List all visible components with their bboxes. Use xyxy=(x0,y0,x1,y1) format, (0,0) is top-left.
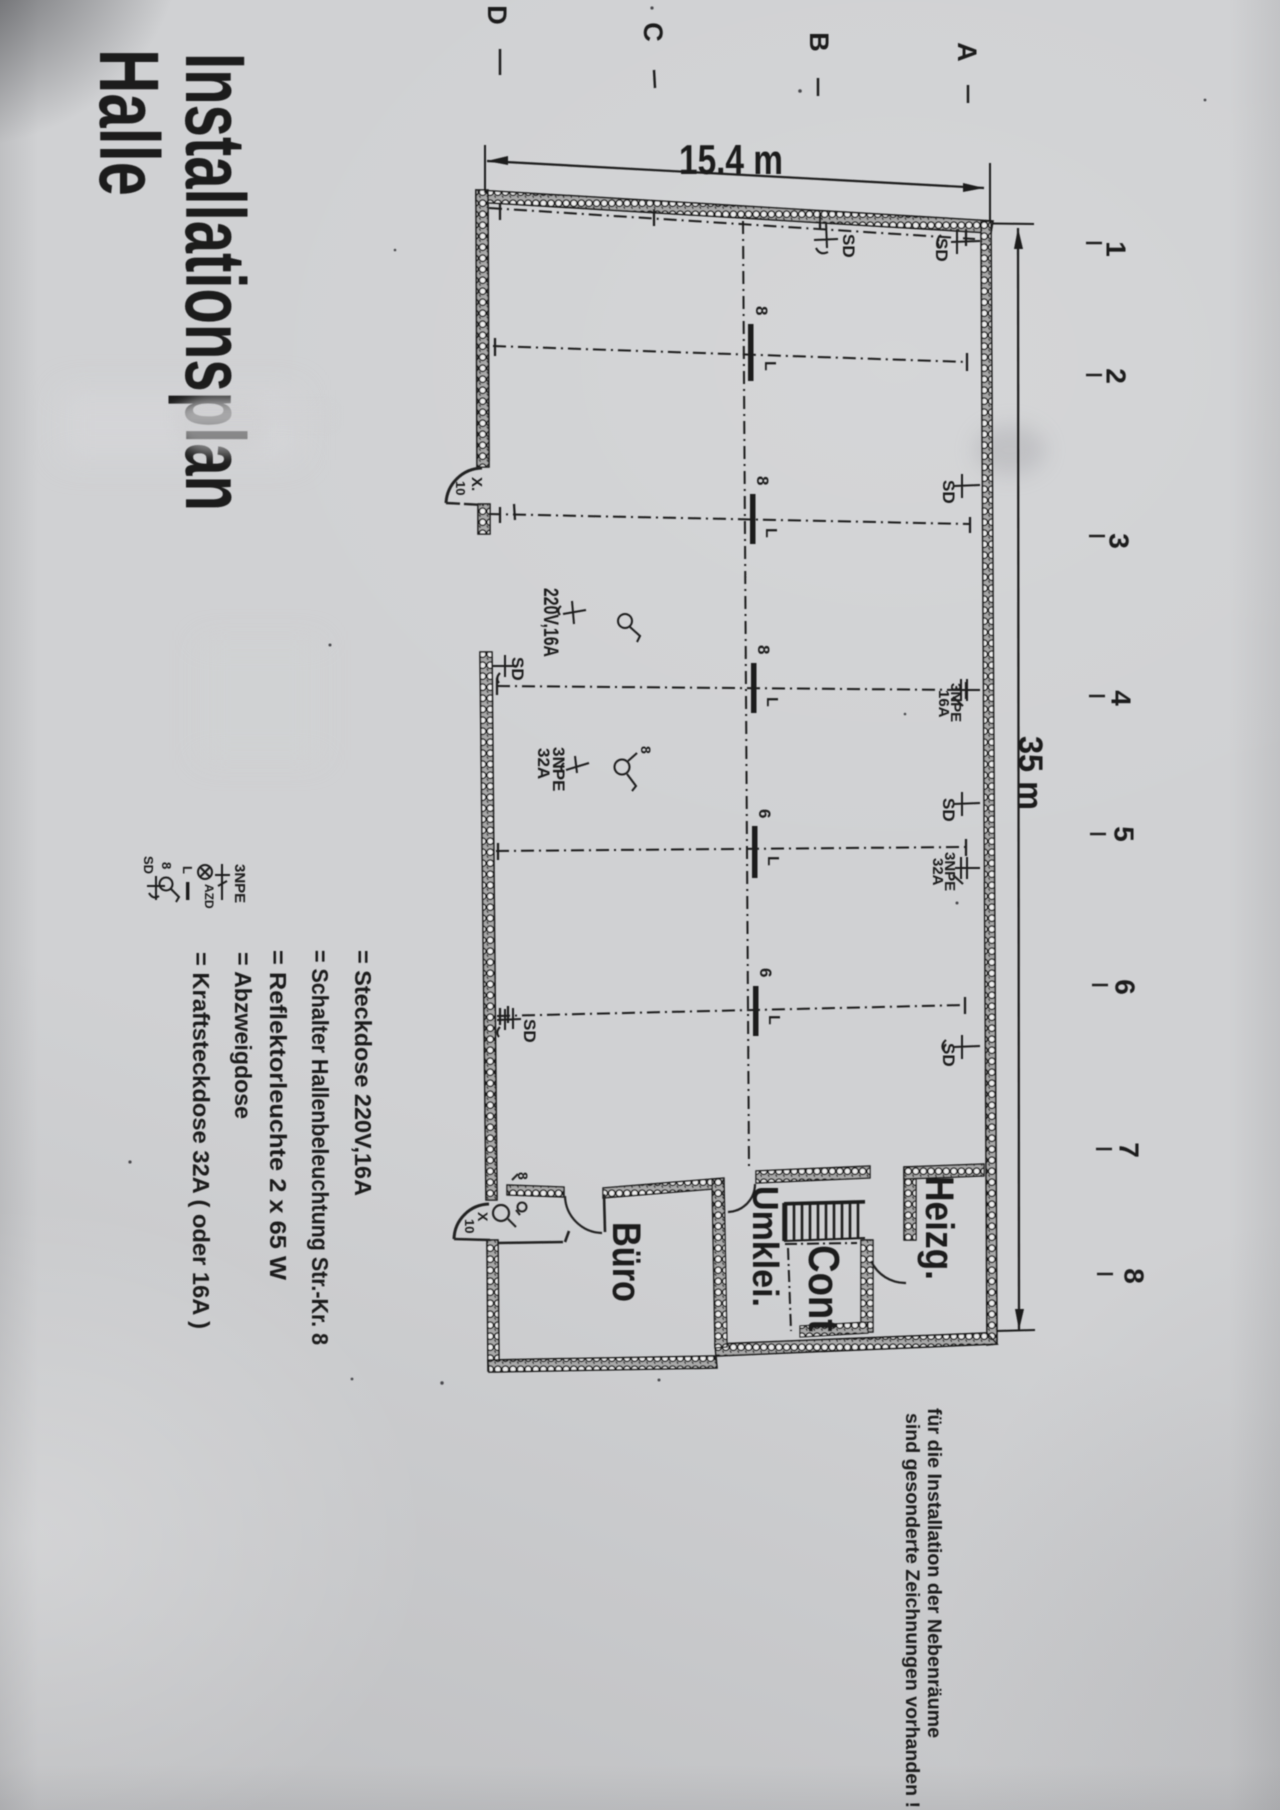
svg-text:8: 8 xyxy=(1119,1268,1150,1284)
svg-text:6: 6 xyxy=(756,968,775,977)
svg-text:L: L xyxy=(761,361,778,371)
svg-text:5: 5 xyxy=(1109,826,1140,842)
svg-text:für die Installation der Neben: für die Installation der Nebenräume xyxy=(923,1408,944,1738)
svg-text:= Kraftsteckdose 32A ( oder 16: = Kraftsteckdose 32A ( oder 16A ) xyxy=(188,952,214,1329)
svg-text:Büro: Büro xyxy=(604,1222,648,1302)
svg-text:10: 10 xyxy=(453,481,468,495)
svg-text:AZD: AZD xyxy=(202,884,216,909)
svg-text:16A: 16A xyxy=(935,690,952,718)
svg-text:3: 3 xyxy=(1104,533,1135,549)
svg-text:1: 1 xyxy=(1101,241,1132,257)
svg-text:Halle: Halle xyxy=(82,49,176,196)
svg-text:A: A xyxy=(952,42,982,62)
svg-text:= Abzweigdose: = Abzweigdose xyxy=(230,952,256,1119)
svg-text:8: 8 xyxy=(638,746,654,754)
svg-text:X.: X. xyxy=(468,477,485,491)
svg-text:SD: SD xyxy=(932,238,951,262)
svg-text:= Schalter Hallenbeleuchtung S: = Schalter Hallenbeleuchtung Str.-Kr. 8 xyxy=(307,950,333,1345)
svg-text:8: 8 xyxy=(159,862,174,869)
svg-text:SD: SD xyxy=(520,1019,539,1043)
svg-text:32A: 32A xyxy=(929,858,946,886)
svg-text:= Steckdose 220V,16A: = Steckdose 220V,16A xyxy=(350,950,376,1196)
svg-text:6: 6 xyxy=(755,809,774,818)
svg-text:32A: 32A xyxy=(534,748,553,779)
svg-text:SD: SD xyxy=(939,480,958,504)
svg-text:Installationsplan: Installationsplan xyxy=(168,53,262,511)
svg-text:7: 7 xyxy=(1114,1142,1145,1158)
svg-text:6: 6 xyxy=(1110,979,1141,995)
svg-text:D: D xyxy=(482,5,512,25)
svg-text:C: C xyxy=(638,22,668,42)
svg-text:B: B xyxy=(804,32,834,52)
svg-text:4: 4 xyxy=(1106,690,1137,706)
svg-text:2: 2 xyxy=(1101,368,1132,384)
svg-text:L: L xyxy=(763,697,780,707)
svg-text:= Reflektorleuchte 2 x 65 W: = Reflektorleuchte 2 x 65 W xyxy=(265,950,291,1280)
svg-text:L: L xyxy=(180,866,195,874)
svg-text:Heizg.: Heizg. xyxy=(917,1176,961,1280)
svg-text:sind gesonderte Zeichnungen vo: sind gesonderte Zeichnungen vorhanden ! xyxy=(901,1413,922,1808)
svg-text:SD: SD xyxy=(939,798,958,822)
svg-text:220V,16A: 220V,16A xyxy=(539,588,562,657)
svg-text:SD: SD xyxy=(839,234,858,258)
svg-text:SD: SD xyxy=(141,856,156,874)
svg-text:8: 8 xyxy=(752,306,771,315)
svg-text:Cont: Cont xyxy=(799,1245,848,1332)
svg-text:10: 10 xyxy=(462,1219,477,1233)
svg-text:35 m: 35 m xyxy=(1011,736,1049,810)
svg-text:SD: SD xyxy=(508,657,527,681)
svg-text:L: L xyxy=(765,1015,782,1025)
svg-text:8: 8 xyxy=(754,645,773,654)
svg-text:8: 8 xyxy=(753,476,772,485)
svg-text:L: L xyxy=(762,528,779,538)
svg-text:L: L xyxy=(764,856,781,866)
svg-text:15.4 m: 15.4 m xyxy=(679,136,783,183)
svg-text:Umklei.: Umklei. xyxy=(745,1186,786,1307)
svg-text:3NPE: 3NPE xyxy=(231,864,248,903)
svg-text:SD: SD xyxy=(939,1043,958,1067)
